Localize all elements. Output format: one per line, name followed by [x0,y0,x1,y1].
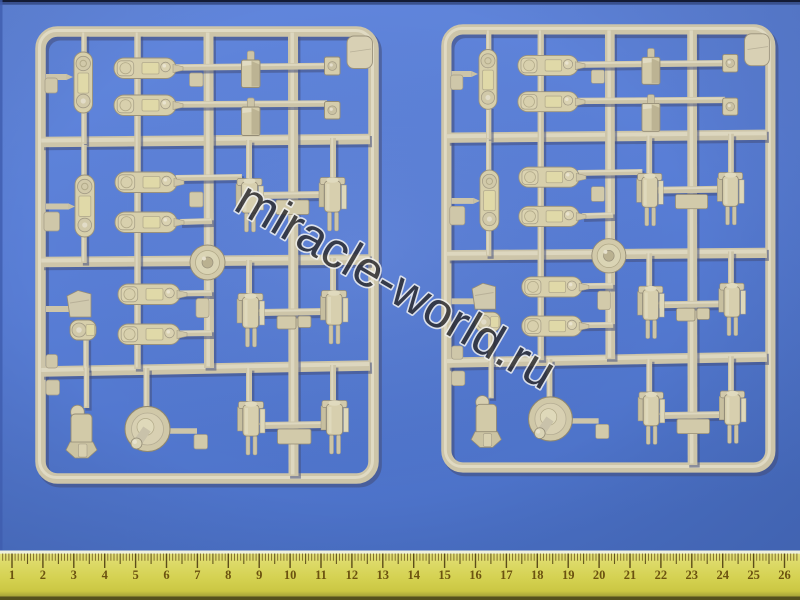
svg-text:22: 22 [655,568,668,582]
svg-text:19: 19 [562,568,575,582]
svg-text:9: 9 [256,568,262,582]
svg-text:6: 6 [163,568,169,582]
svg-text:5: 5 [132,568,138,582]
svg-text:24: 24 [716,568,729,582]
svg-text:18: 18 [531,568,544,582]
svg-text:25: 25 [747,568,760,582]
svg-text:13: 13 [377,568,390,582]
svg-text:11: 11 [315,568,327,582]
svg-text:2: 2 [40,568,46,582]
svg-text:8: 8 [225,568,231,582]
svg-text:21: 21 [624,568,637,582]
svg-text:3: 3 [71,568,77,582]
svg-text:4: 4 [102,568,109,582]
svg-text:12: 12 [346,568,359,582]
svg-text:20: 20 [593,568,606,582]
svg-text:16: 16 [469,568,482,582]
svg-text:10: 10 [284,568,297,582]
svg-text:14: 14 [407,568,420,582]
svg-text:26: 26 [778,568,791,582]
svg-text:1: 1 [9,568,15,582]
svg-text:17: 17 [500,568,513,582]
svg-text:15: 15 [438,568,451,582]
svg-text:23: 23 [686,568,699,582]
svg-text:7: 7 [194,568,200,582]
